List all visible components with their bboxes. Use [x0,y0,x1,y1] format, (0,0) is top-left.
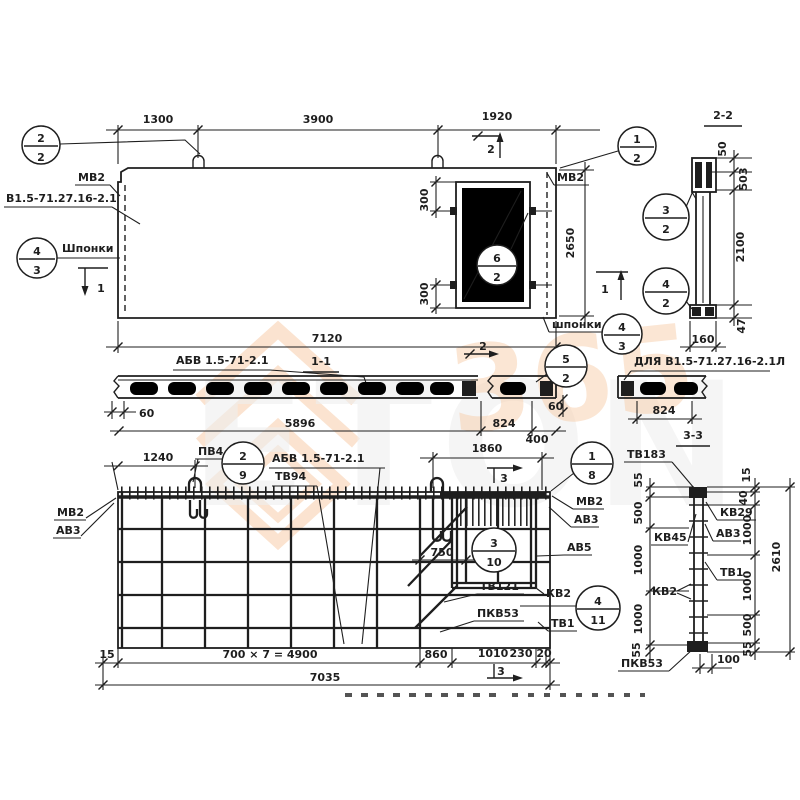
section-mark-1-left: 1 [78,268,108,296]
callout-den: 3 [618,340,626,353]
dim-2100: 2100 [734,231,747,262]
svg-text:МВ2: МВ2 [78,171,105,184]
svg-text:МВ2: МВ2 [576,495,603,508]
section-2-label: 2 [479,340,487,353]
watermark: ETON 365 [190,298,747,546]
dim-right-15: 15 [740,467,753,482]
dim-230: 230 [510,647,533,660]
section-3-label: 3 [497,665,505,678]
section-2-2-profile [690,158,716,318]
callout-keys-left-4-3: 4 3 Шпонки [17,238,120,278]
dim-20: 20 [536,647,552,660]
svg-text:МВ2: МВ2 [57,506,84,519]
svg-text:АВ3: АВ3 [716,527,741,540]
callout-den: 2 [662,297,670,310]
svg-text:КВ29: КВ29 [720,506,753,519]
svg-text:АВ5: АВ5 [567,541,592,554]
callout-num: 5 [562,353,570,366]
svg-text:ТВ1: ТВ1 [551,617,575,630]
dim-100: 100 [717,653,740,666]
svg-text:КВ45: КВ45 [654,531,687,544]
svg-text:АБВ 1.5-71-2.1: АБВ 1.5-71-2.1 [176,354,269,367]
dim-503: 503 [737,168,750,191]
section-3-3-title: 3-3 [683,429,703,442]
engineering-drawing-sheet: ETON 365 [0,0,800,800]
callout-den: 11 [590,614,605,627]
callout-num: 6 [493,252,501,265]
svg-text:ТВ183: ТВ183 [627,448,666,461]
dim-400: 400 [526,433,549,446]
svg-text:ТВ121: ТВ121 [480,580,519,593]
callout-num: 4 [33,245,41,258]
top-plan-view: 300 300 1300 3900 1920 2 [4,110,656,354]
callout-num: 4 [662,278,670,291]
callout-den: 2 [562,372,570,385]
dim-750: 750 [431,546,454,559]
dim-right-40: 40 [737,490,750,506]
section-1-label: 1 [601,283,609,296]
callout-mesh-3-10: 3 10 [472,528,516,572]
callout-den: 10 [486,556,502,569]
svg-text:ТВ1: ТВ1 [720,566,744,579]
dim-1240: 1240 [143,451,174,464]
svg-text:ПКВ53: ПКВ53 [477,607,519,620]
callout-den: 9 [239,469,247,482]
dim-7120: 7120 [312,332,343,345]
dim-2610: 2610 [770,541,783,572]
dim-1920: 1920 [482,110,513,123]
callout-den: 3 [33,264,41,277]
dim-1860: 1860 [472,442,503,455]
dim-60-left: 60 [139,407,155,420]
dim-right-500: 500 [741,613,754,636]
callout-num: 4 [594,595,602,608]
dim-15: 15 [99,648,114,661]
callout-num: 1 [633,133,641,146]
bottom-dim-row-2: 7035 [95,671,560,690]
label-mv2-right: МВ2 [547,171,589,185]
dim-700x7: 700 × 7 = 4900 [223,648,318,661]
section-2-2-title: 2-2 [713,109,733,122]
callout-corner-1-2: 1 2 [560,127,656,168]
svg-text:АВ3: АВ3 [56,524,81,537]
dim-824: 824 [493,417,516,430]
dim-3900: 3900 [303,113,334,126]
dim-1300: 1300 [143,113,174,126]
dim-7035: 7035 [310,671,341,684]
svg-text:КВ2: КВ2 [546,587,571,600]
dim-left-1000a: 1000 [632,544,645,575]
section-1-1-title: 1-1 [311,355,331,368]
label-series-mark: В1.5-71.27.16-2.1 [4,192,140,224]
callout-num: 3 [662,204,670,217]
dim-860: 860 [425,648,448,661]
section-2-label: 2 [487,143,495,156]
dim-300-bottom: 300 [418,282,431,305]
callout-3-2: 3 2 [643,191,693,240]
callout-num: 2 [37,132,45,145]
label-keys-right: шпонки [552,318,602,331]
dim-1010: 1010 [478,647,509,660]
label-kv2-plan: КВ2 [536,587,571,600]
callout-loop-2-2: 2 2 [22,126,200,164]
svg-text:МВ2: МВ2 [557,171,584,184]
dim-left-55a: 55 [632,472,645,487]
svg-text:ПКВ53: ПКВ53 [621,657,663,670]
svg-text:АВ3: АВ3 [574,513,599,526]
section-1-label: 1 [97,282,105,295]
svg-text:АБВ 1.5-71-2.1: АБВ 1.5-71-2.1 [272,452,365,465]
dim-2650: 2650 [564,227,577,258]
section-3-label: 3 [500,472,508,485]
dim-100-group: 100 [692,653,740,674]
dim-5896: 5896 [285,417,316,430]
callout-num: 2 [239,450,247,463]
label-keys-left: Шпонки [62,242,114,255]
label-tv1-section: ТВ1 [705,562,745,580]
opening-dims: 300 300 [418,176,456,314]
callout-den: 2 [633,152,641,165]
svg-text:В1.5-71.27.16-2.1: В1.5-71.27.16-2.1 [6,192,117,205]
height-dimension-2650: 2650 [559,162,594,324]
callout-num: 1 [588,450,596,463]
variant-label: ДЛЯ В1.5-71.27.16-2.1Л [634,355,785,368]
dim-47: 47 [735,318,748,333]
dim-left-1000b: 1000 [632,603,645,634]
dim-left-500: 500 [632,501,645,524]
dim-824-variant: 824 [653,404,676,417]
callout-num: 4 [618,321,626,334]
callout-den: 8 [588,469,596,482]
dim-160: 160 [692,333,715,346]
section-mark-1-right: 1 [596,270,628,300]
label-mv2-plan-left: МВ2 [54,498,116,520]
dim-60-right: 60 [548,400,564,413]
label-tv94: ТВ94 [275,470,307,483]
callout-den: 2 [37,151,45,164]
svg-text:КВ2: КВ2 [652,585,677,598]
callout-den: 2 [662,223,670,236]
dim-left-55b: 55 [630,642,643,657]
section-mark-2-top: 2 [472,132,504,159]
callout-den: 2 [493,271,501,284]
dim-50: 50 [716,141,729,157]
dim-300-top: 300 [418,188,431,211]
label-pv4: ПВ4 [198,445,224,458]
callout-num: 3 [490,537,498,550]
drawing-svg: ETON 365 [0,0,800,800]
top-dimension-chain: 1300 3900 1920 [106,110,600,164]
dim-right-55: 55 [741,641,754,656]
section-mark-3-bottom: 3 [487,664,523,682]
